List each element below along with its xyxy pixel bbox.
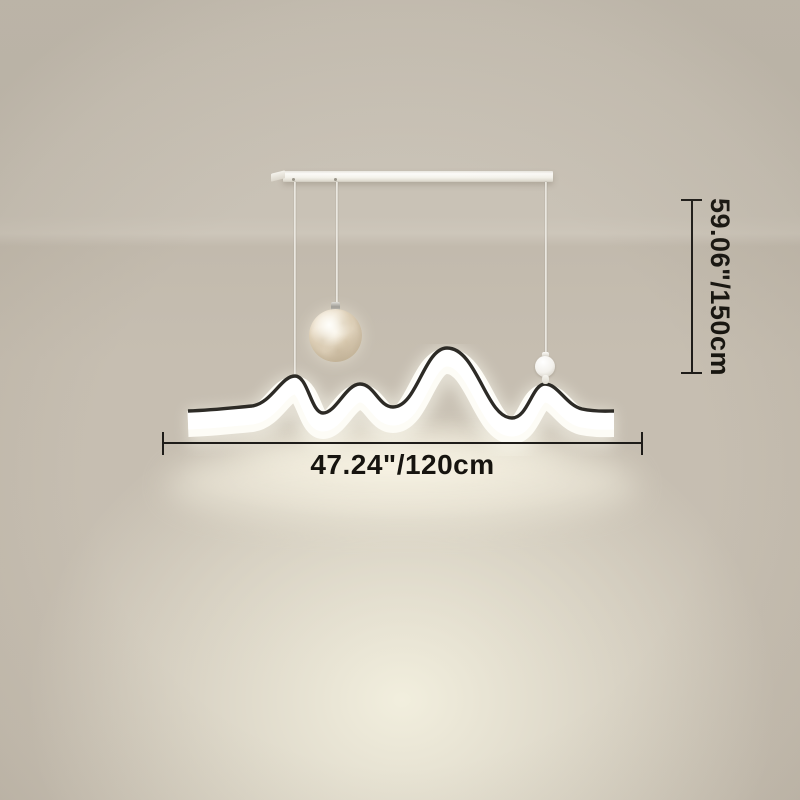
product-photo-scene: 47.24"/120cm 59.06"/150cm	[0, 0, 800, 800]
ceiling-mount-bar	[283, 171, 553, 182]
width-dim-line	[162, 442, 643, 444]
pendant-cord-left	[294, 182, 296, 378]
accent-ball	[535, 356, 555, 377]
cord-anchor-left	[292, 178, 295, 181]
scene-vignette	[0, 0, 800, 800]
width-dimension: 47.24"/120cm	[162, 432, 643, 455]
height-dimension-label: 59.06"/150cm	[704, 198, 735, 376]
wave-light-fixture	[0, 0, 800, 800]
cord-anchor-middle	[334, 178, 337, 181]
height-dimension: 59.06"/150cm	[681, 199, 702, 374]
pendant-cord-right	[545, 182, 547, 358]
accent-ball-neck	[542, 375, 549, 384]
width-dimension-label: 47.24"/120cm	[162, 449, 643, 481]
height-dim-line	[691, 199, 693, 374]
pendant-cord-moon	[336, 182, 338, 304]
moon-globe-shade	[309, 309, 362, 362]
height-dim-cap-bottom	[681, 372, 702, 374]
